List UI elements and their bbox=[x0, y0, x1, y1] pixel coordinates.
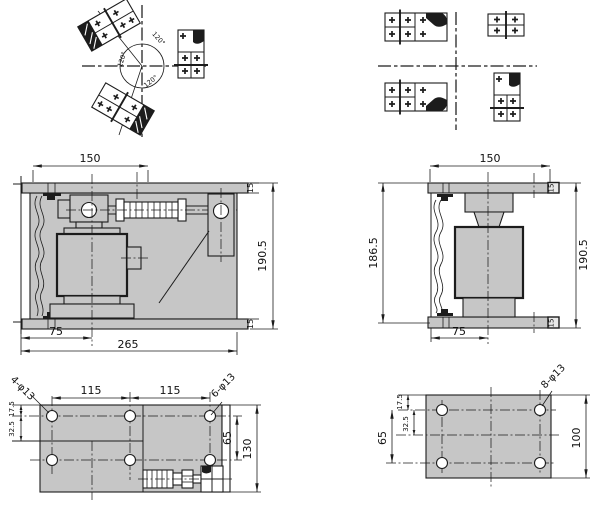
module-top-left bbox=[385, 10, 447, 45]
dim-holes: 8-φ13 bbox=[539, 363, 567, 391]
dim-depth: 100 bbox=[570, 428, 583, 449]
module-right bbox=[174, 30, 208, 78]
module-bottom-left bbox=[385, 80, 447, 115]
view-base-plan-left: 115 115 4-φ13 6-φ13 17.5 32.5 65 130 bbox=[8, 372, 261, 500]
dim-overall-height: 190.5 bbox=[256, 240, 269, 272]
dim-plate-top: 15 bbox=[548, 184, 556, 193]
turnbuckle-plan bbox=[138, 466, 232, 492]
view-base-plan-right: 8-φ13 17.5 32.5 65 100 bbox=[376, 363, 590, 488]
dim-top-width: 150 bbox=[480, 152, 501, 165]
angle-label-1: 120° bbox=[150, 30, 166, 47]
dim-top-width: 150 bbox=[80, 152, 101, 165]
dim-inner-height: 186.5 bbox=[367, 237, 380, 269]
view-angular-arrangement: 120° 120° 120° bbox=[76, 0, 208, 138]
module-rotated-upper bbox=[76, 0, 141, 54]
dim-overall-width: 265 bbox=[118, 338, 139, 351]
dim-pitch-a: 115 bbox=[81, 384, 102, 397]
dim-edge: 17.5 bbox=[8, 401, 16, 417]
angle-label-3: 120° bbox=[142, 73, 159, 89]
dim-edge: 17.5 bbox=[396, 394, 404, 410]
view-front-elevation: 150 15 190.5 15 75 265 bbox=[13, 152, 278, 355]
dim-plate-bottom: 15 bbox=[246, 319, 255, 329]
dim-holes-corner: 4-φ13 bbox=[8, 374, 36, 402]
dim-cell-offset: 75 bbox=[49, 325, 63, 338]
dim-row: 32.5 bbox=[8, 421, 16, 437]
dim-cell-offset: 75 bbox=[452, 325, 466, 338]
dim-row: 32.5 bbox=[402, 416, 410, 432]
drawing-canvas: 120° 120° 120° bbox=[0, 0, 606, 517]
dim-row-pitch: 65 bbox=[221, 431, 234, 445]
weigh-module-technical-drawing: 120° 120° 120° bbox=[0, 0, 606, 517]
view-cross-arrangement bbox=[378, 10, 537, 131]
dim-pitch-b: 115 bbox=[160, 384, 181, 397]
dim-row-pitch: 65 bbox=[376, 431, 389, 445]
dim-overall-height: 190.5 bbox=[577, 239, 590, 271]
dim-holes-mid: 6-φ13 bbox=[209, 372, 237, 400]
view-side-elevation: 150 186.5 190.5 75 15 15 bbox=[367, 152, 590, 344]
module-bottom-right bbox=[490, 73, 524, 121]
module-top-right bbox=[488, 11, 524, 39]
dim-plate-top: 15 bbox=[246, 183, 255, 193]
mounting-wall bbox=[13, 176, 29, 334]
flex-conduit bbox=[434, 200, 443, 313]
dim-depth: 130 bbox=[241, 439, 254, 460]
angle-label-2: 120° bbox=[116, 51, 128, 68]
dim-plate-bottom: 15 bbox=[548, 319, 556, 328]
top-plate bbox=[22, 183, 248, 193]
